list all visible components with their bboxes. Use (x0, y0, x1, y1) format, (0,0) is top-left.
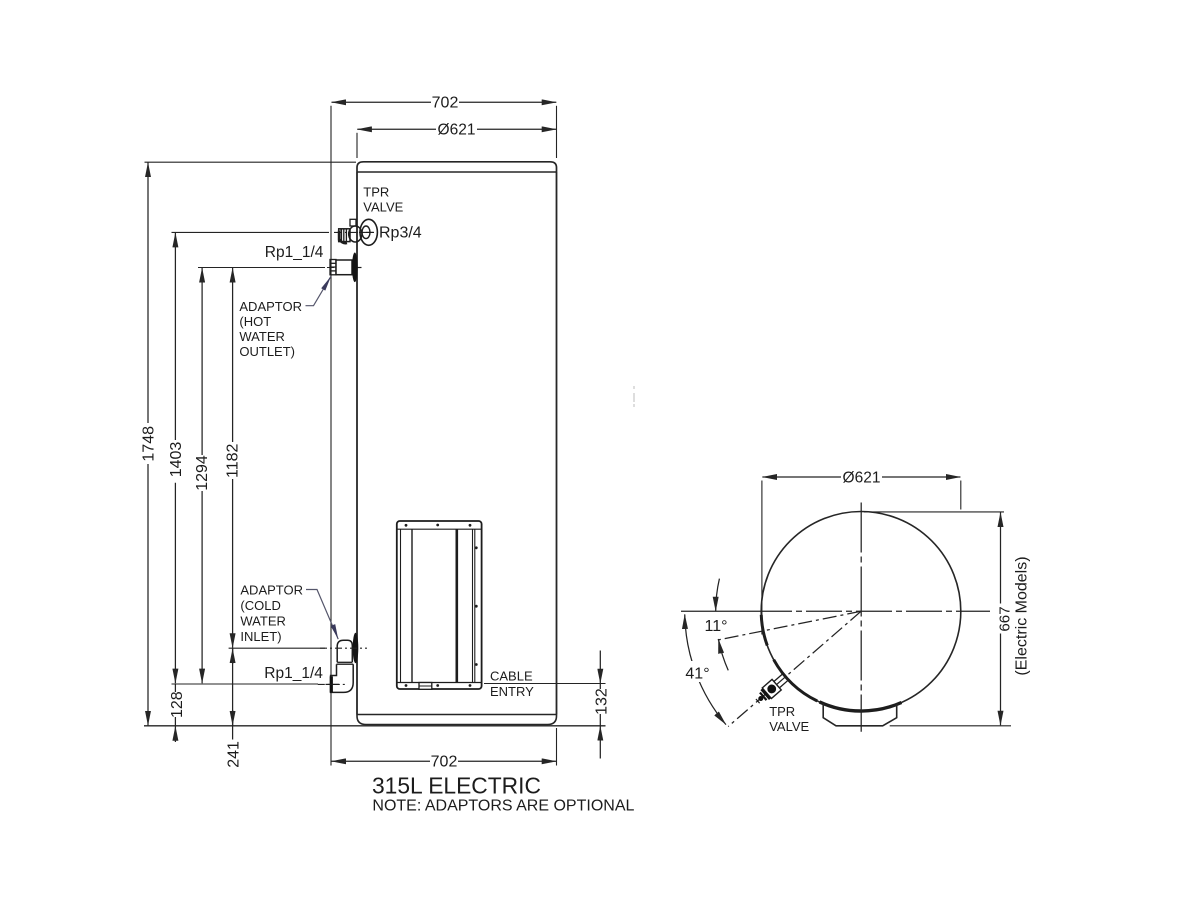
svg-text:128: 128 (169, 691, 186, 718)
svg-text:667: 667 (997, 606, 1014, 631)
svg-text:INLET): INLET) (240, 629, 281, 644)
svg-text:NOTE: ADAPTORS ARE OPTIONAL: NOTE: ADAPTORS ARE OPTIONAL (372, 798, 634, 815)
svg-text:WATER: WATER (239, 329, 285, 344)
svg-text:ADAPTOR: ADAPTOR (240, 583, 303, 598)
svg-text:315L ELECTRIC: 315L ELECTRIC (372, 773, 541, 799)
svg-text:VALVE: VALVE (769, 719, 809, 734)
svg-text:702: 702 (432, 95, 459, 112)
svg-text:ADAPTOR: ADAPTOR (239, 299, 302, 314)
svg-text:WATER: WATER (240, 614, 286, 629)
svg-text:702: 702 (431, 754, 458, 771)
svg-text:Ø621: Ø621 (438, 122, 476, 139)
svg-text:1403: 1403 (168, 442, 185, 478)
svg-text:Rp1_1/4: Rp1_1/4 (264, 665, 323, 682)
svg-text:(COLD: (COLD (240, 598, 280, 613)
svg-text:132: 132 (593, 688, 610, 715)
svg-text:1294: 1294 (194, 455, 211, 491)
svg-text:Rp3/4: Rp3/4 (379, 225, 422, 242)
svg-text:TPR: TPR (363, 184, 389, 199)
svg-text:241: 241 (225, 741, 242, 768)
svg-text:ENTRY: ENTRY (490, 684, 534, 699)
svg-text:(Electric Models): (Electric Models) (1013, 556, 1030, 675)
svg-text:11°: 11° (704, 618, 727, 635)
svg-text:1748: 1748 (140, 426, 157, 462)
svg-text:41°: 41° (685, 666, 709, 683)
svg-text:OUTLET): OUTLET) (239, 344, 295, 359)
svg-text:1182: 1182 (224, 443, 241, 478)
svg-text:TPR: TPR (769, 704, 795, 719)
svg-text:Rp1_1/4: Rp1_1/4 (265, 244, 324, 261)
svg-text:(HOT: (HOT (239, 314, 271, 329)
svg-text:VALVE: VALVE (363, 200, 403, 215)
svg-text:CABLE: CABLE (490, 669, 533, 684)
svg-text:Ø621: Ø621 (843, 469, 881, 486)
